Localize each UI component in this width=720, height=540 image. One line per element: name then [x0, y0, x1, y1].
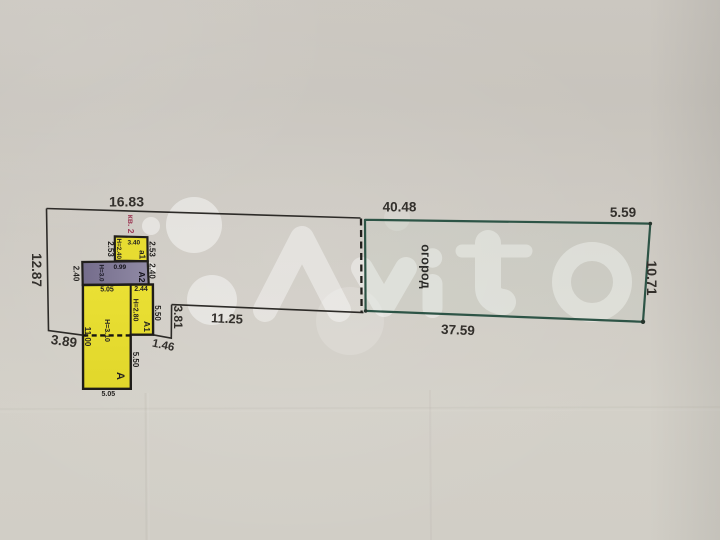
svg-text:А2: А2: [137, 272, 147, 283]
svg-text:а1: а1: [138, 250, 147, 259]
svg-text:2.40: 2.40: [148, 263, 157, 279]
svg-text:2.44: 2.44: [134, 286, 148, 293]
svg-text:Н=3.0: Н=3.0: [97, 265, 104, 282]
svg-text:11.25: 11.25: [211, 310, 243, 326]
svg-text:Н=3.10: Н=3.10: [103, 319, 110, 342]
svg-text:16.83: 16.83: [109, 194, 144, 210]
svg-text:2.53: 2.53: [106, 241, 115, 257]
svg-text:5.05: 5.05: [101, 391, 115, 398]
svg-text:Н=2.40: Н=2.40: [115, 239, 122, 260]
svg-text:5.05: 5.05: [100, 287, 114, 294]
svg-text:37.59: 37.59: [441, 322, 475, 338]
svg-text:40.48: 40.48: [383, 200, 417, 215]
svg-text:3.40: 3.40: [127, 240, 140, 247]
svg-text:0.99: 0.99: [113, 264, 126, 271]
svg-text:5.59: 5.59: [610, 205, 636, 220]
svg-text:5.50: 5.50: [153, 305, 162, 321]
svg-text:3.81: 3.81: [171, 305, 185, 329]
svg-text:А1: А1: [142, 321, 152, 332]
svg-text:12.87: 12.87: [29, 253, 44, 287]
svg-text:Н=2.80: Н=2.80: [132, 299, 139, 322]
svg-text:2.53: 2.53: [148, 241, 157, 257]
svg-text:5.50: 5.50: [131, 352, 140, 368]
svg-text:А: А: [114, 372, 126, 380]
svg-text:огород: огород: [419, 244, 433, 289]
svg-text:11.00: 11.00: [83, 327, 92, 347]
svg-text:10.71: 10.71: [644, 260, 660, 295]
svg-text:2.40: 2.40: [72, 266, 81, 282]
svg-text:кв. 2: кв. 2: [126, 215, 136, 234]
